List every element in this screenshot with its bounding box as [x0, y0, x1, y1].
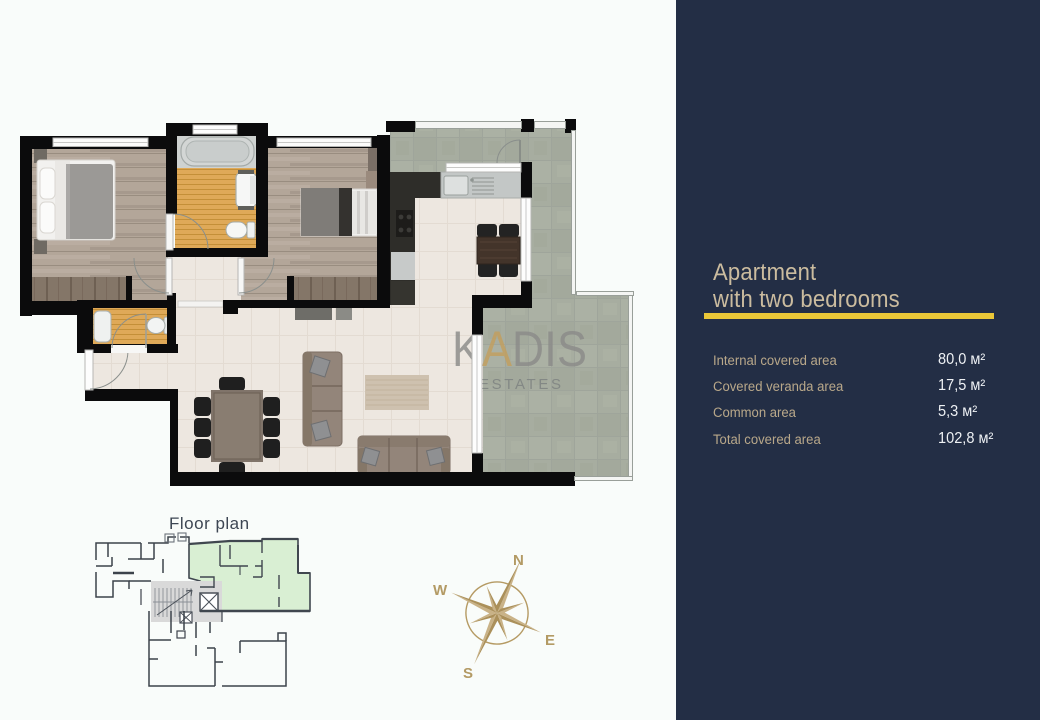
svg-text:D: D — [512, 321, 544, 377]
svg-text:E: E — [545, 632, 555, 649]
svg-text:Floor plan: Floor plan — [169, 514, 250, 533]
svg-text:W: W — [433, 582, 448, 599]
svg-text:A: A — [482, 321, 513, 377]
svg-text:S: S — [557, 321, 587, 377]
svg-text:I: I — [544, 321, 557, 377]
svg-text:S: S — [463, 665, 473, 682]
svg-text:N: N — [513, 552, 524, 569]
